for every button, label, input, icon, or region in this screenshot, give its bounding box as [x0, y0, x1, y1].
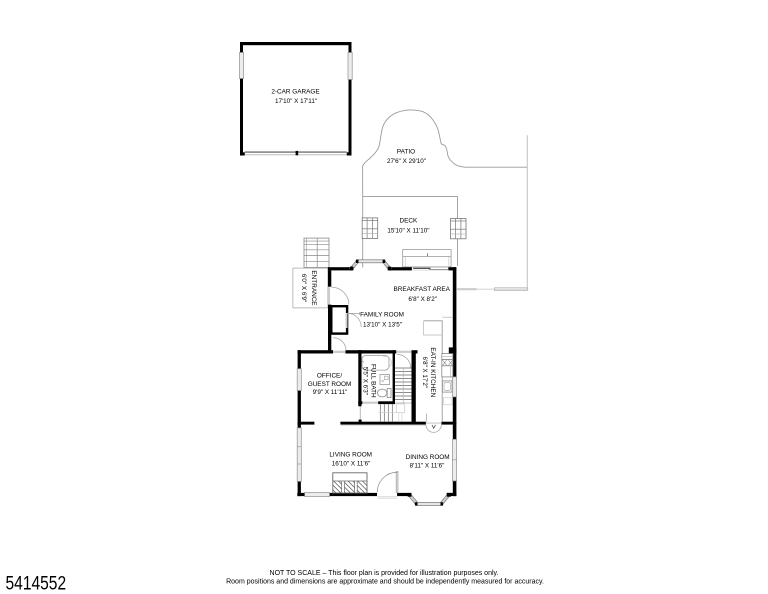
- svg-text:5'5" X 6'3": 5'5" X 6'3": [362, 367, 369, 395]
- svg-text:DECK: DECK: [400, 218, 418, 225]
- svg-text:27'6" X 29'10": 27'6" X 29'10": [387, 158, 426, 165]
- svg-text:Room positions and dimensions: Room positions and dimensions are approx…: [226, 579, 544, 586]
- svg-text:EAT-IN KITCHEN: EAT-IN KITCHEN: [429, 347, 436, 397]
- svg-text:GUEST ROOM: GUEST ROOM: [308, 381, 352, 388]
- svg-text:17'10" X 17'11": 17'10" X 17'11": [275, 98, 317, 105]
- svg-text:15'10" X 11'10": 15'10" X 11'10": [387, 228, 429, 235]
- svg-text:16'10" X 11'6": 16'10" X 11'6": [332, 460, 371, 467]
- svg-text:ENTRANCE: ENTRANCE: [310, 270, 317, 305]
- svg-text:6'8" X 17'2": 6'8" X 17'2": [421, 357, 428, 389]
- svg-text:DINING ROOM: DINING ROOM: [406, 454, 450, 461]
- svg-text:5414552: 5414552: [6, 572, 67, 594]
- svg-text:9'9" X 11'11": 9'9" X 11'11": [313, 389, 348, 396]
- svg-text:FAMILY ROOM: FAMILY ROOM: [360, 312, 404, 319]
- svg-text:FULL BATH: FULL BATH: [370, 364, 377, 398]
- svg-text:6'8" X 8'2": 6'8" X 8'2": [408, 296, 437, 303]
- svg-text:LIVING ROOM: LIVING ROOM: [329, 452, 372, 459]
- svg-text:6'0" X 6'9": 6'0" X 6'9": [300, 274, 307, 303]
- svg-text:NOT TO SCALE – This floor plan: NOT TO SCALE – This floor plan is provid…: [270, 570, 499, 577]
- svg-text:2-CAR GARAGE: 2-CAR GARAGE: [271, 88, 319, 95]
- svg-text:PATIO: PATIO: [397, 149, 415, 156]
- svg-text:13'10" X 13'5": 13'10" X 13'5": [363, 322, 402, 329]
- svg-text:8'11" X 11'6": 8'11" X 11'6": [410, 462, 445, 469]
- svg-text:OFFICE/: OFFICE/: [317, 373, 342, 380]
- svg-text:BREAKFAST AREA: BREAKFAST AREA: [394, 286, 451, 293]
